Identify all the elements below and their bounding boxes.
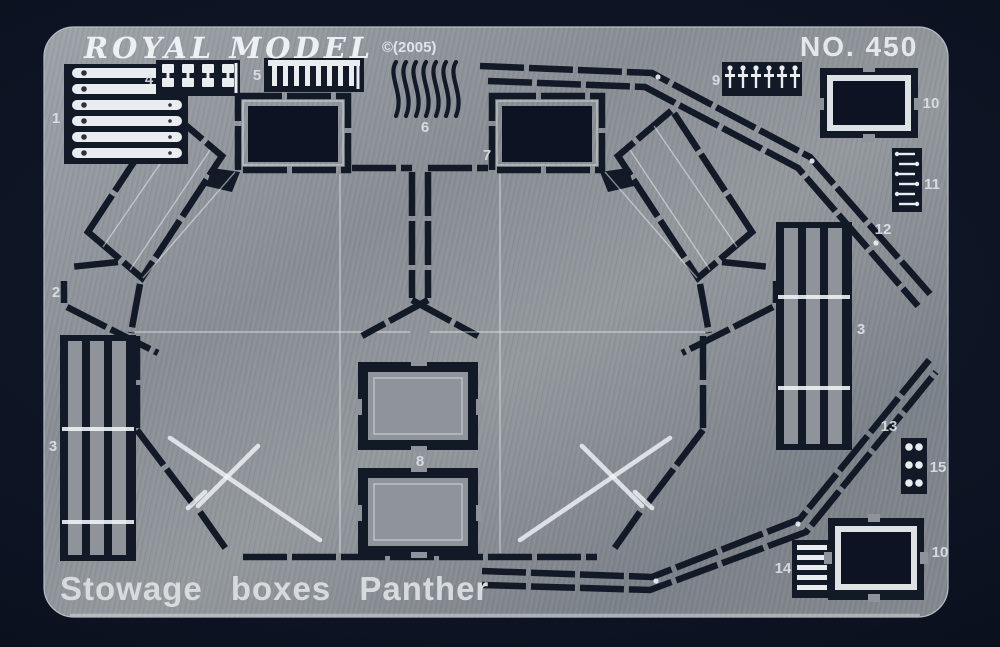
part8-tab	[476, 505, 482, 521]
part-label-10-bottom: 10	[932, 544, 949, 561]
part1-strip	[72, 116, 182, 126]
part3l-tab-row	[62, 520, 134, 524]
part14-strip	[797, 585, 827, 590]
part-label-7: 7	[483, 147, 491, 164]
part8-lid-lower	[368, 478, 468, 546]
copyright-text: ©(2005)	[382, 39, 436, 56]
part8-tab	[411, 360, 427, 366]
part1-strip	[72, 100, 182, 110]
sheet-number: NO. 450	[800, 31, 918, 62]
part10t-tab	[863, 64, 875, 72]
part10b-tab	[920, 552, 928, 564]
brand-name: ROYAL MODEL	[83, 31, 374, 65]
part10t-tab	[914, 98, 922, 110]
left-lid-window	[248, 106, 338, 162]
photo-of-photoetch-fret: ROYAL MODEL ©(2005) NO. 450 Stowage boxe…	[0, 0, 1000, 647]
part-label-9: 9	[712, 72, 720, 89]
part-label-3-left: 3	[49, 438, 57, 455]
part-label-1: 1	[52, 110, 60, 127]
part3r-strip	[828, 228, 842, 444]
part9-block	[722, 62, 802, 96]
part-9-toggles	[722, 62, 802, 96]
part-10-frame-bottom	[824, 514, 928, 602]
part8-tab	[356, 399, 362, 415]
part8-lid-upper	[368, 372, 468, 440]
part-label-5: 5	[253, 67, 261, 84]
part1-strip	[72, 132, 182, 142]
part3r-tab-row	[778, 295, 850, 299]
part10b-ring	[838, 529, 914, 587]
rail-tab	[809, 158, 814, 163]
product-title: Stowage boxes Panther	[60, 570, 489, 607]
part10b-tab	[868, 594, 880, 602]
part-label-4: 4	[145, 71, 154, 88]
part8-tab	[356, 505, 362, 521]
part-11-hinge-pins	[892, 148, 922, 212]
rail-tab	[655, 74, 660, 79]
part10b-tab	[824, 552, 832, 564]
rail-tab	[873, 240, 878, 245]
rail-tab	[653, 578, 658, 583]
part10t-tab	[816, 98, 824, 110]
part-15-grommets	[901, 438, 927, 494]
part14-strip	[797, 555, 827, 560]
part10t-ring	[830, 78, 908, 128]
part14-strip	[797, 565, 827, 570]
part-label-3-right: 3	[857, 321, 865, 338]
part3r-strip	[784, 228, 798, 444]
part-label-14: 14	[775, 560, 792, 577]
part14-strip	[797, 545, 827, 550]
part3l-tab-row	[62, 427, 134, 431]
part-4-clasps	[156, 60, 240, 96]
part10t-tab	[863, 134, 875, 142]
etched-sheet-drawing: ROYAL MODEL ©(2005) NO. 450 Stowage boxe…	[0, 0, 1000, 647]
part1-strip	[72, 148, 182, 158]
part-3-strips-right	[776, 222, 852, 450]
part-label-12: 12	[875, 221, 892, 238]
part15-block	[901, 438, 927, 494]
right-lid-window	[502, 106, 592, 162]
part-label-11: 11	[924, 176, 940, 193]
part3r-strip	[806, 228, 820, 444]
rail-tab	[795, 521, 800, 526]
part-label-8: 8	[416, 453, 424, 470]
part-label-6: 6	[421, 119, 429, 136]
part8-tab	[411, 446, 427, 452]
part14-strip	[797, 575, 827, 580]
part3r-tab-row	[778, 386, 850, 390]
part-label-15: 15	[930, 459, 947, 476]
part-3-strips-left	[60, 335, 136, 561]
part8-tab	[476, 399, 482, 415]
part-label-13: 13	[881, 418, 898, 435]
part-14-strips	[792, 540, 832, 598]
part-label-2: 2	[52, 284, 60, 301]
part10b-tab	[868, 514, 880, 522]
part-10-frame-top	[816, 64, 922, 142]
part-label-10-top: 10	[923, 95, 940, 112]
part8-tab	[411, 552, 427, 558]
